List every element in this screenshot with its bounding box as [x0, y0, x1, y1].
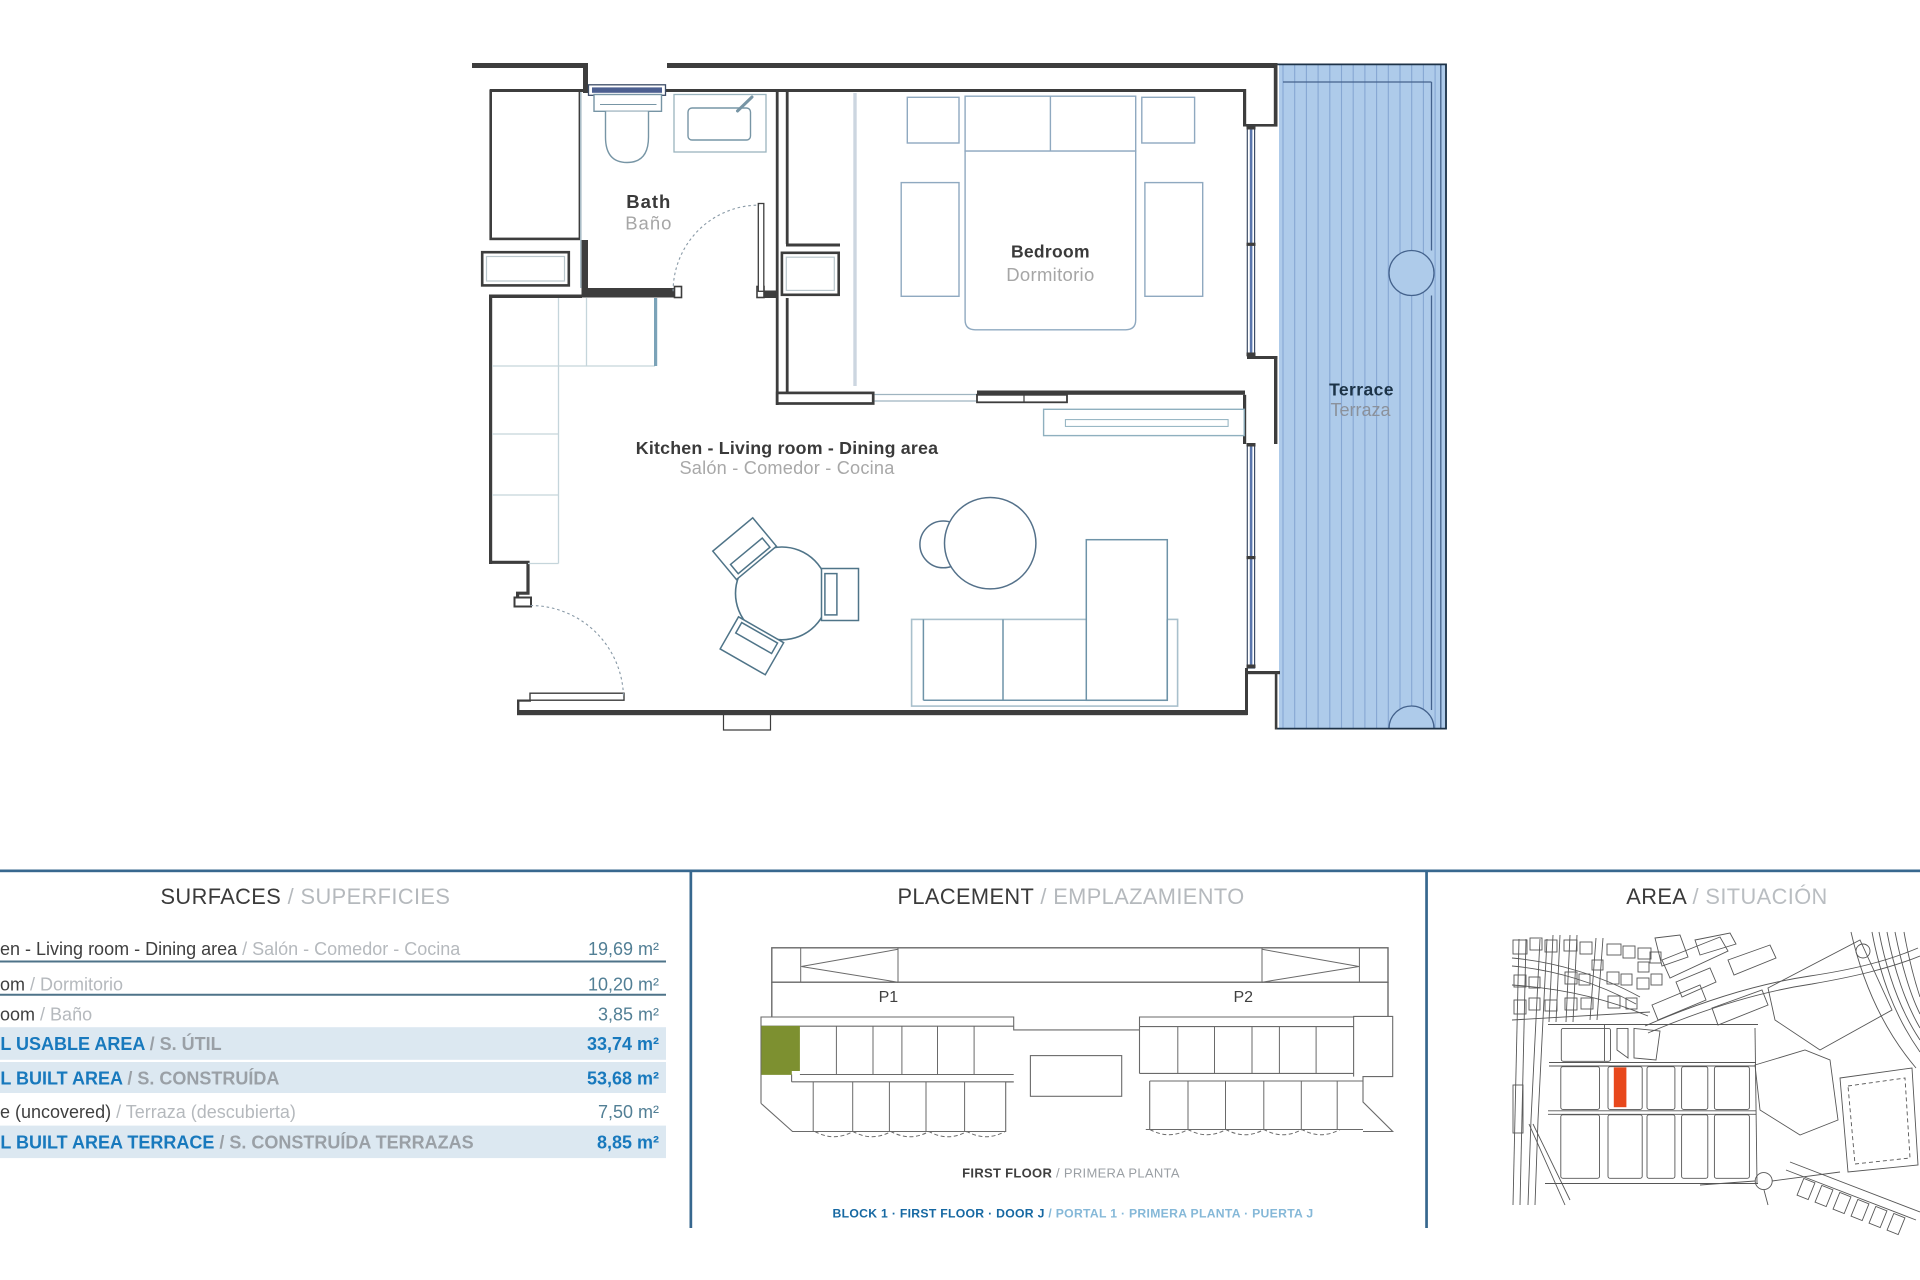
svg-text:Baño: Baño: [625, 213, 672, 234]
svg-text:3,85 m²: 3,85 m²: [598, 1005, 659, 1025]
svg-text:Bedroom: Bedroom: [1011, 242, 1090, 262]
svg-text:BLOCK 1 · FIRST FLOOR · DOOR J: BLOCK 1 · FIRST FLOOR · DOOR J / PORTAL …: [833, 1207, 1314, 1221]
svg-text:10,20 m²: 10,20 m²: [588, 974, 659, 994]
svg-text:Terraza: Terraza: [1330, 400, 1391, 420]
svg-text:TOTAL BUILT AREA TERRACE / S.: TOTAL BUILT AREA TERRACE / S. CONSTRUÍDA…: [0, 1132, 474, 1153]
svg-text:SURFACES / SUPERFICIES: SURFACES / SUPERFICIES: [160, 884, 450, 909]
svg-text:Salón - Comedor - Cocina: Salón - Comedor - Cocina: [679, 458, 895, 478]
svg-text:AREA / SITUACIÓN: AREA / SITUACIÓN: [1626, 884, 1827, 909]
svg-text:Dormitorio: Dormitorio: [1006, 264, 1094, 285]
svg-text:P1: P1: [879, 989, 899, 1006]
svg-text:P2: P2: [1234, 989, 1254, 1006]
svg-text:Bath: Bath: [626, 191, 671, 212]
svg-text:19,69 m²: 19,69 m²: [588, 939, 659, 959]
svg-text:33,74 m²: 33,74 m²: [587, 1034, 659, 1054]
svg-text:Bedroom / Dormitorio: Bedroom / Dormitorio: [0, 974, 123, 994]
svg-text:Kitchen - Living room - Dining: Kitchen - Living room - Dining area / Sa…: [0, 939, 461, 959]
svg-text:TOTAL BUILT AREA / S. CONSTRUÍ: TOTAL BUILT AREA / S. CONSTRUÍDA: [0, 1068, 279, 1089]
svg-text:Terrace (uncovered) / Terraza: Terrace (uncovered) / Terraza (descubier…: [0, 1102, 296, 1122]
svg-text:Bathroom / Baño: Bathroom / Baño: [0, 1005, 92, 1025]
svg-text:Kitchen - Living room - Dining: Kitchen - Living room - Dining area: [636, 438, 938, 458]
svg-text:Terrace: Terrace: [1329, 380, 1394, 400]
svg-text:FIRST FLOOR / PRIMERA PLANTA: FIRST FLOOR / PRIMERA PLANTA: [962, 1166, 1180, 1181]
svg-text:8,85 m²: 8,85 m²: [597, 1133, 659, 1153]
svg-text:7,50 m²: 7,50 m²: [598, 1102, 659, 1122]
svg-text:TOTAL USABLE AREA / S. ÚTIL: TOTAL USABLE AREA / S. ÚTIL: [0, 1033, 222, 1054]
svg-text:53,68 m²: 53,68 m²: [587, 1069, 659, 1089]
svg-text:PLACEMENT / EMPLAZAMIENTO: PLACEMENT / EMPLAZAMIENTO: [897, 884, 1244, 909]
